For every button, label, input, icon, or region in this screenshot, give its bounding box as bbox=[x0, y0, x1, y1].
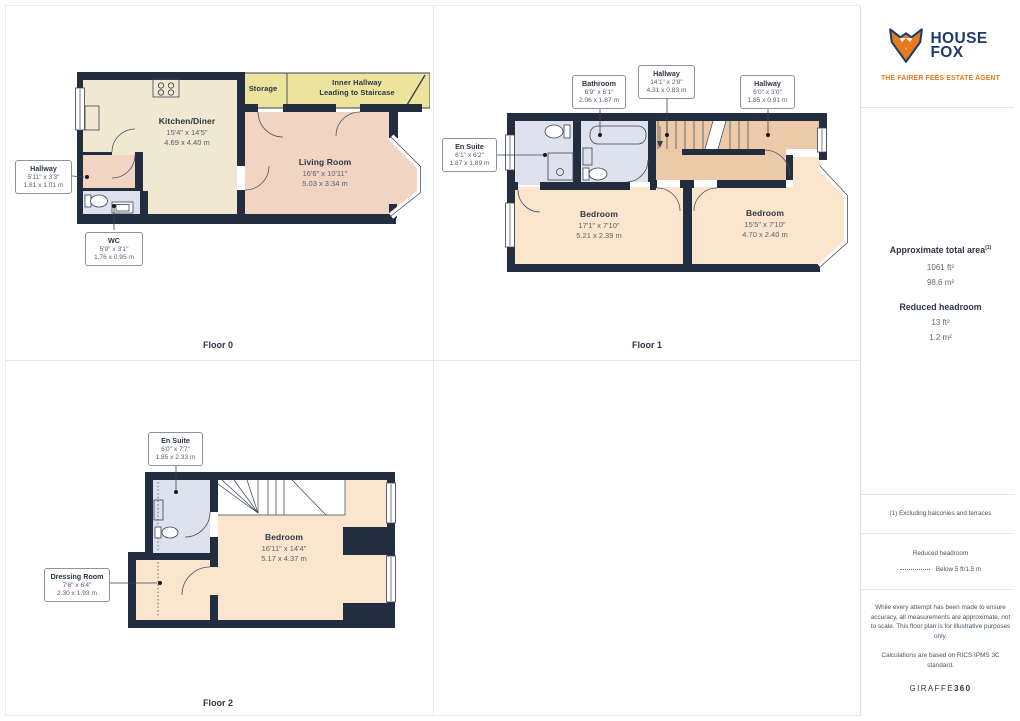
dotted-line-icon bbox=[900, 569, 930, 570]
callout-dressing-room: Dressing Room 7'6" x 6'4" 2.30 x 1.93 m bbox=[44, 568, 110, 602]
room-dim-metric: 5.21 x 2.39 m bbox=[576, 231, 621, 240]
callout-dim-metric: 2.06 x 1.87 m bbox=[575, 97, 623, 104]
area-footnote: (1) Excluding balconies and terraces bbox=[861, 510, 1020, 517]
room-dim-imperial: 15'4" x 14'5" bbox=[159, 128, 216, 137]
floor-2-drawing bbox=[0, 360, 430, 721]
room-dim-metric: 5.03 x 3.34 m bbox=[299, 179, 352, 188]
floor-1-panel: Bedroom 17'1" x 7'10" 5.21 x 2.39 m Bedr… bbox=[430, 0, 860, 360]
reduced-headroom-title: Reduced headroom bbox=[861, 302, 1020, 312]
room-label-bedroom-right: Bedroom 15'5" x 7'10" 4.70 x 2.40 m bbox=[742, 208, 787, 239]
info-sidebar: HOUSE FOX THE FAIRER FEES ESTATE AGENT A… bbox=[861, 0, 1020, 721]
legend-title: Reduced headroom bbox=[861, 550, 1020, 557]
callout-dim-imperial: 6'1" x 6'2" bbox=[445, 152, 494, 159]
room-dim-metric: 4.69 x 4.40 m bbox=[159, 138, 216, 147]
giraffe360-watermark: GIRAFFE360 bbox=[861, 684, 1020, 693]
room-dim-imperial: 15'5" x 7'10" bbox=[742, 220, 787, 229]
callout-name: WC bbox=[88, 236, 140, 245]
callout-hallway-right: Hallway 6'0" x 3'0" 1.85 x 0.91 m bbox=[740, 75, 795, 109]
room-label-storage: Storage bbox=[249, 84, 278, 94]
room-name: Bedroom bbox=[261, 532, 306, 542]
callout-en-suite: En Suite 6'0" x 7'7" 1.85 x 2.33 m bbox=[148, 432, 203, 466]
callout-dim-imperial: 5'11" x 3'3" bbox=[18, 174, 69, 181]
callout-dim-metric: 1.85 x 0.91 m bbox=[743, 97, 792, 104]
callout-name: Hallway bbox=[743, 79, 792, 88]
total-area-m: 98.6 m² bbox=[861, 278, 1020, 287]
floor-2-panel: Bedroom 16'11" x 14'4" 5.17 x 4.37 m En … bbox=[0, 360, 430, 721]
housefox-logo: HOUSE FOX bbox=[861, 26, 1014, 66]
room-name: Bedroom bbox=[742, 208, 787, 218]
floor-1-drawing bbox=[430, 0, 860, 360]
fox-icon bbox=[887, 26, 925, 66]
callout-hallway: Hallway 5'11" x 3'3" 1.81 x 1.01 m bbox=[15, 160, 72, 194]
floor1-room-fills bbox=[515, 121, 848, 268]
callout-dim-metric: 2.30 x 1.93 m bbox=[47, 590, 107, 597]
callout-dim-metric: 4.31 x 0.83 m bbox=[641, 87, 692, 94]
sidebar-divider-1 bbox=[861, 107, 1014, 108]
room-label-kitchen-diner: Kitchen/Diner 15'4" x 14'5" 4.69 x 4.40 … bbox=[159, 116, 216, 147]
callout-dim-imperial: 6'0" x 7'7" bbox=[151, 446, 200, 453]
room-label-bedroom-left: Bedroom 17'1" x 7'10" 5.21 x 2.39 m bbox=[576, 209, 621, 240]
floor-caption: Floor 0 bbox=[203, 340, 233, 350]
callout-name: En Suite bbox=[445, 142, 494, 151]
callout-name: Bathroom bbox=[575, 79, 623, 88]
room-name: Inner Hallway bbox=[319, 78, 394, 88]
sidebar-divider-2 bbox=[861, 494, 1014, 495]
callout-dim-imperial: 6'9" x 6'1" bbox=[575, 89, 623, 96]
legend-item: Below 5 ft/1.5 m bbox=[936, 566, 981, 573]
floor-0-panel: Kitchen/Diner 15'4" x 14'5" 4.69 x 4.40 … bbox=[0, 0, 430, 360]
room-name: Bedroom bbox=[576, 209, 621, 219]
callout-dim-imperial: 7'6" x 6'4" bbox=[47, 582, 107, 589]
reduced-headroom-ft: 13 ft² bbox=[861, 318, 1020, 327]
callout-hallway-mid: Hallway 14'1" x 2'8" 4.31 x 0.83 m bbox=[638, 65, 695, 99]
brand-wordmark: HOUSE FOX bbox=[930, 32, 987, 60]
room-dim-imperial: 17'1" x 7'10" bbox=[576, 221, 621, 230]
brand-tagline: THE FAIRER FEES ESTATE AGENT bbox=[861, 75, 1020, 82]
floor-caption: Floor 2 bbox=[203, 698, 233, 708]
standards-text: Calculations are based on RICS IPMS 3C s… bbox=[861, 651, 1020, 670]
callout-dim-metric: 1.85 x 2.33 m bbox=[151, 454, 200, 461]
room-name: Living Room bbox=[299, 157, 352, 167]
callout-wc: WC 5'9" x 3'1" 1.76 x 0.95 m bbox=[85, 232, 143, 266]
giraffe-text: GIRAFFE bbox=[909, 684, 953, 693]
room-dim-imperial: 16'11" x 14'4" bbox=[261, 544, 306, 553]
floorplan-sheet: Kitchen/Diner 15'4" x 14'5" 4.69 x 4.40 … bbox=[0, 0, 1020, 721]
legend-row: Below 5 ft/1.5 m bbox=[861, 566, 1020, 573]
reduced-headroom-m: 1.2 m² bbox=[861, 333, 1020, 342]
room-label-bedroom: Bedroom 16'11" x 14'4" 5.17 x 4.37 m bbox=[261, 532, 306, 563]
total-area-footnote-ref: (1) bbox=[985, 245, 991, 251]
total-area-ft: 1061 ft² bbox=[861, 263, 1020, 272]
room-dim-metric: 5.17 x 4.37 m bbox=[261, 554, 306, 563]
callout-en-suite: En Suite 6'1" x 6'2" 1.87 x 1.89 m bbox=[442, 138, 497, 172]
room-name: Storage bbox=[249, 84, 278, 94]
disclaimer-text: While every attempt has been made to ens… bbox=[861, 603, 1020, 641]
sidebar-divider-4 bbox=[861, 589, 1014, 590]
giraffe-360: 360 bbox=[954, 684, 972, 693]
room-name: Kitchen/Diner bbox=[159, 116, 216, 126]
callout-dim-metric: 1.76 x 0.95 m bbox=[88, 254, 140, 261]
callout-dim-imperial: 5'9" x 3'1" bbox=[88, 246, 140, 253]
callout-dim-metric: 1.81 x 1.01 m bbox=[18, 182, 69, 189]
room-dim-metric: 4.70 x 2.40 m bbox=[742, 230, 787, 239]
total-area-title: Approximate total area(1) bbox=[861, 245, 1020, 255]
callout-name: Hallway bbox=[18, 164, 69, 173]
total-area-title-text: Approximate total area bbox=[890, 245, 985, 255]
callout-name: Dressing Room bbox=[47, 572, 107, 581]
room-name-line2: Leading to Staircase bbox=[319, 88, 394, 98]
callout-name: En Suite bbox=[151, 436, 200, 445]
callout-dim-metric: 1.87 x 1.89 m bbox=[445, 160, 494, 167]
room-label-inner-hallway: Inner Hallway Leading to Staircase bbox=[319, 78, 394, 97]
room-label-living-room: Living Room 16'6" x 10'11" 5.03 x 3.34 m bbox=[299, 157, 352, 188]
callout-dim-imperial: 14'1" x 2'8" bbox=[641, 79, 692, 86]
callout-dim-imperial: 6'0" x 3'0" bbox=[743, 89, 792, 96]
callout-bathroom: Bathroom 6'9" x 6'1" 2.06 x 1.87 m bbox=[572, 75, 626, 109]
floor-caption: Floor 1 bbox=[632, 340, 662, 350]
brand-word-fox: FOX bbox=[930, 46, 987, 60]
room-dim-imperial: 16'6" x 10'11" bbox=[299, 169, 352, 178]
callout-name: Hallway bbox=[641, 69, 692, 78]
sidebar-divider-3 bbox=[861, 533, 1014, 534]
